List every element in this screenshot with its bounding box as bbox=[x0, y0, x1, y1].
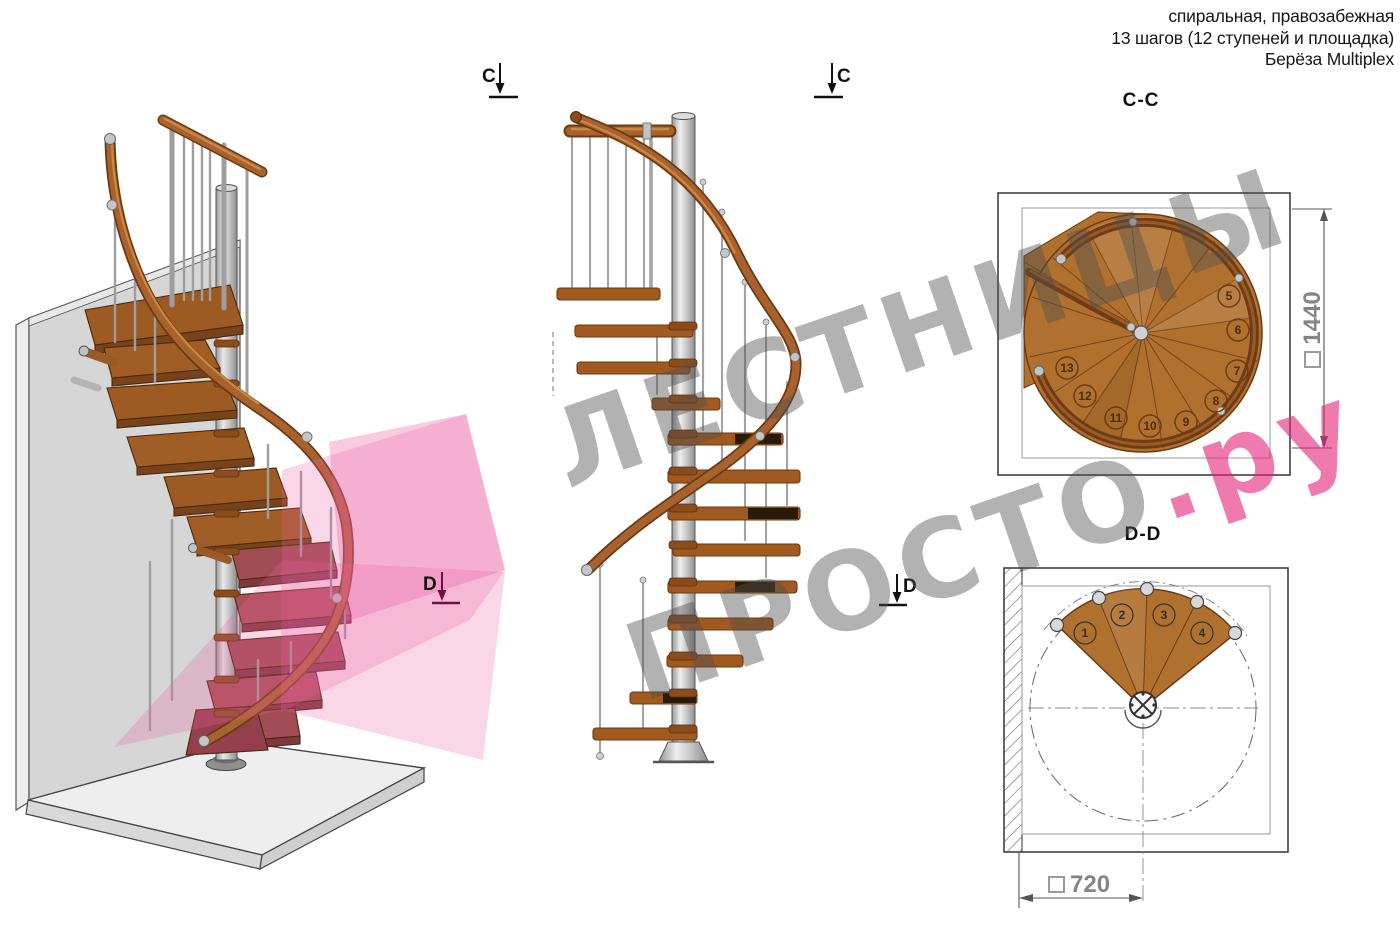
marker-letter: D bbox=[423, 574, 437, 595]
step-number: 8 bbox=[1213, 394, 1220, 408]
drawing-sheet: спиральная, правозабежная 13 шагов (12 с… bbox=[0, 0, 1400, 940]
note-material: Берёза Multiplex bbox=[1111, 49, 1394, 71]
step-number: 1 bbox=[1082, 626, 1089, 640]
step-number: 2 bbox=[1119, 608, 1126, 622]
section-title-cc: C-C bbox=[1116, 90, 1166, 112]
step-number: 5 bbox=[1226, 289, 1233, 303]
view-section-cc: 5 6 7 8 9 10 11 12 13 1440 bbox=[990, 180, 1340, 480]
section-marker-d-right: D bbox=[876, 568, 922, 614]
step-number: 12 bbox=[1078, 389, 1092, 403]
dimension-value: 1440 bbox=[1299, 291, 1326, 344]
view-3d-perspective bbox=[0, 90, 520, 880]
dd-dimension-720: 720 bbox=[1019, 852, 1143, 908]
step-number: 4 bbox=[1199, 626, 1206, 640]
title-notes: спиральная, правозабежная 13 шагов (12 с… bbox=[1111, 6, 1394, 71]
dimension-value: 720 bbox=[1070, 871, 1110, 898]
cc-dimension-1440: 1440 bbox=[1292, 209, 1332, 448]
step-number: 10 bbox=[1143, 419, 1157, 433]
note-step-count: 13 шагов (12 ступеней и площадка) bbox=[1111, 28, 1394, 50]
section-marker-d-left: D bbox=[420, 566, 466, 612]
marker-letter: C bbox=[837, 66, 851, 87]
marker-letter: C bbox=[482, 66, 496, 87]
step-number: 11 bbox=[1110, 411, 1123, 425]
square-symbol-icon bbox=[1049, 877, 1064, 892]
landing-fence-rail bbox=[163, 119, 262, 172]
view-front-elevation bbox=[535, 95, 965, 785]
dd-wall-hatch bbox=[1004, 568, 1022, 852]
square-symbol-icon bbox=[1305, 352, 1320, 367]
section-title-dd: D-D bbox=[1118, 524, 1168, 546]
step-number: 3 bbox=[1161, 608, 1168, 622]
step-number: 6 bbox=[1235, 323, 1242, 337]
view-section-dd: 1 2 3 4 720 bbox=[995, 555, 1335, 925]
step-number: 7 bbox=[1234, 364, 1241, 378]
marker-letter: D bbox=[903, 576, 917, 597]
step-number: 9 bbox=[1183, 415, 1190, 429]
step-number: 13 bbox=[1060, 361, 1074, 375]
note-stair-type: спиральная, правозабежная bbox=[1111, 6, 1394, 28]
section-marker-c-left: C bbox=[479, 58, 525, 104]
section-marker-c-right: C bbox=[808, 58, 854, 104]
